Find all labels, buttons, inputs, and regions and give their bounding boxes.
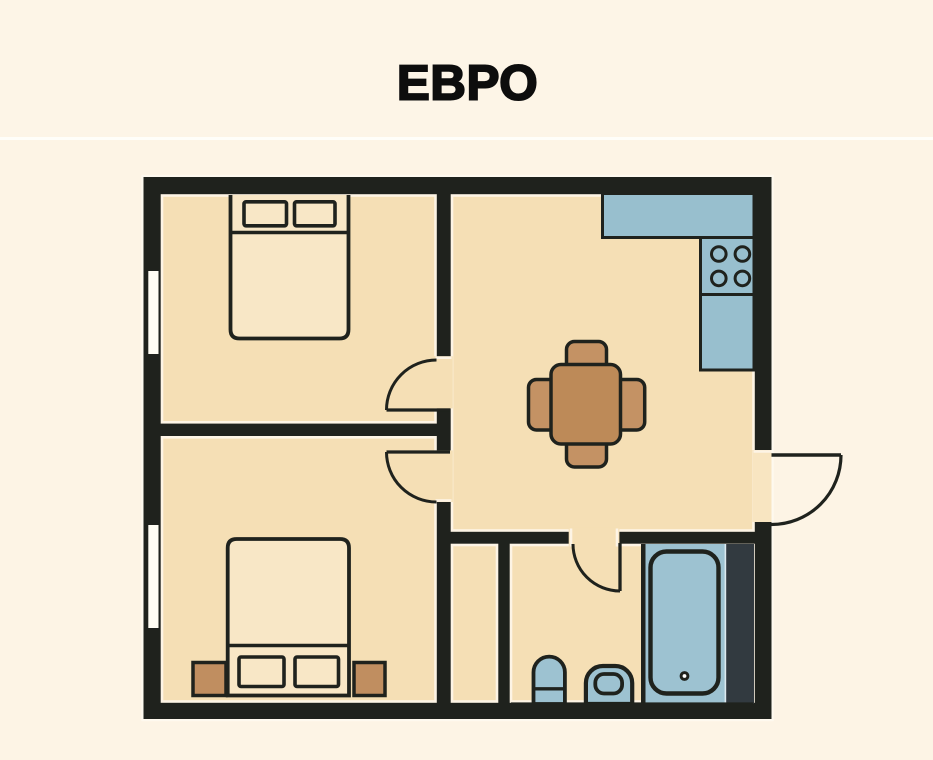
svg-text:ЕВРО: ЕВРО xyxy=(397,56,538,111)
